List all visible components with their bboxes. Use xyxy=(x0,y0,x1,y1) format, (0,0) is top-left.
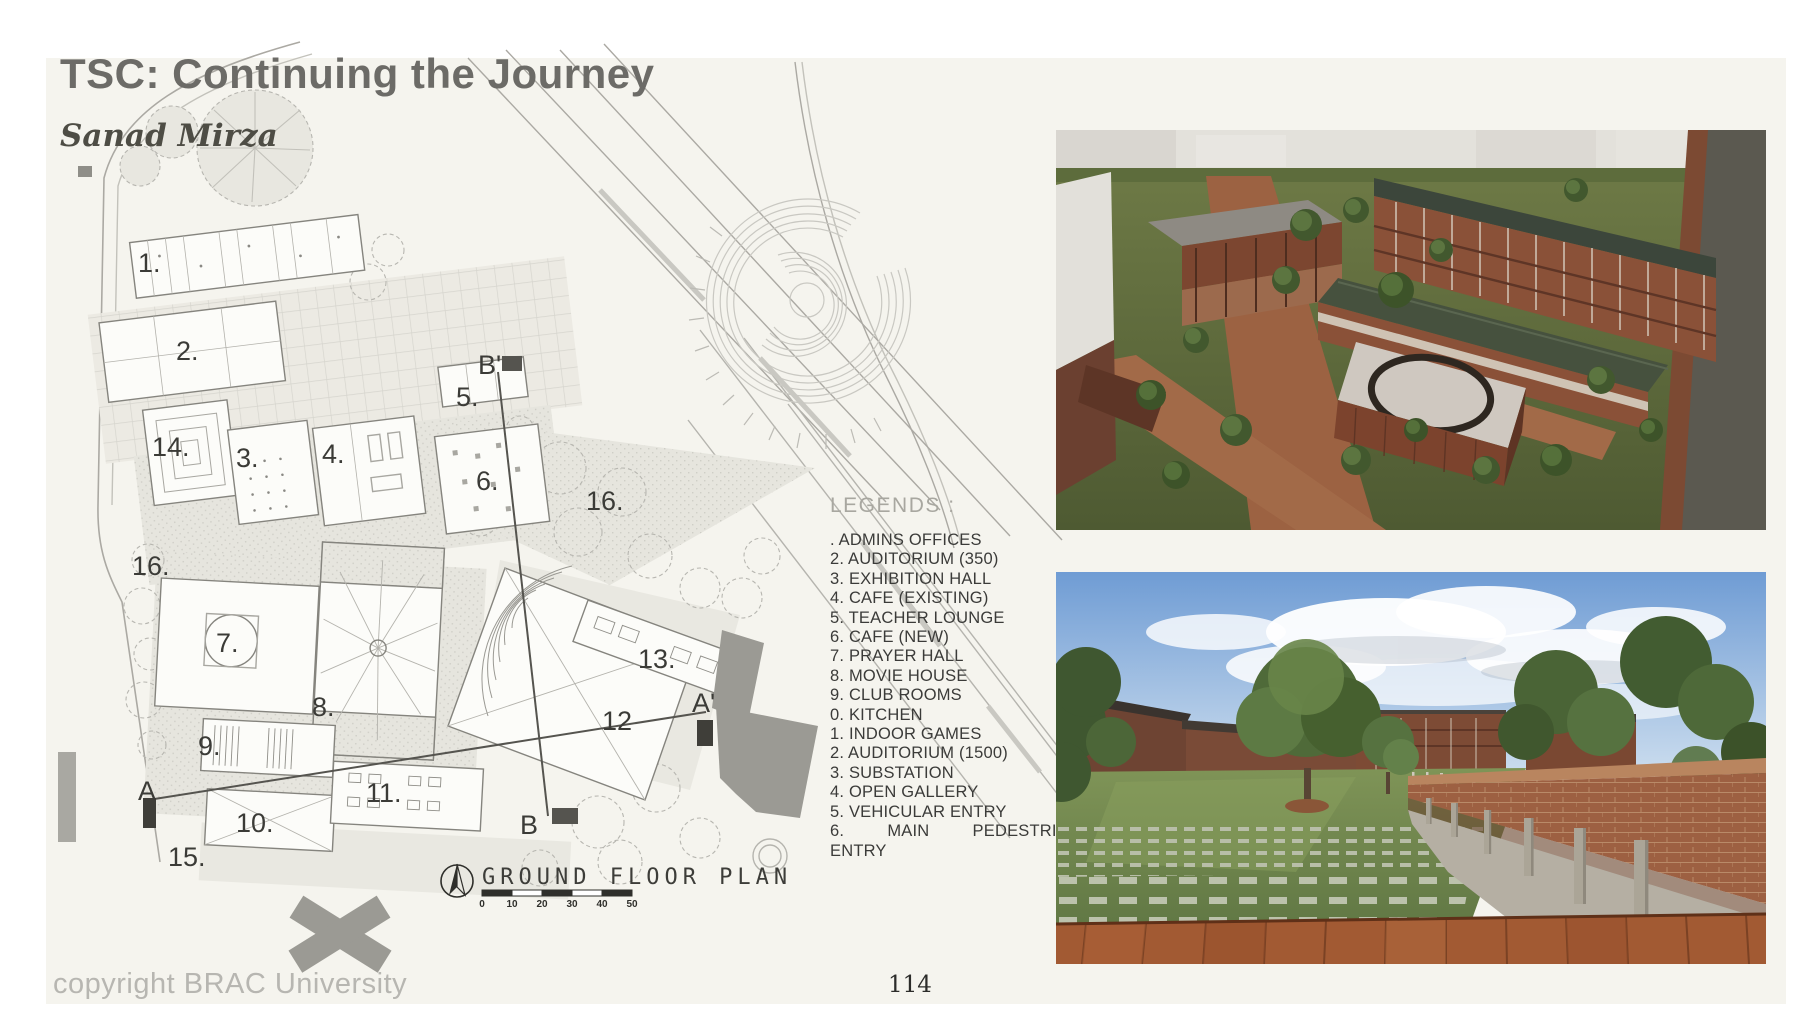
page-title: TSC: Continuing the Journey xyxy=(60,50,654,98)
plan-label-11: 11. xyxy=(366,778,402,808)
svg-text:40: 40 xyxy=(596,899,608,910)
plan-label-2: 2. xyxy=(176,336,199,366)
plan-label-9: 9. xyxy=(198,731,221,761)
plan-building-11-indoor-games xyxy=(330,761,483,831)
plan-label-12: 12 xyxy=(602,706,632,736)
svg-text:30: 30 xyxy=(566,899,578,910)
courtyard-render-image xyxy=(1056,572,1766,964)
plan-label-6: 6. xyxy=(476,466,499,496)
plan-label-14: 14. xyxy=(152,432,190,462)
plan-label-3: 3. xyxy=(236,443,259,473)
page-number: 114 xyxy=(888,972,932,998)
plan-label-10: 10. xyxy=(236,808,274,838)
svg-text:50: 50 xyxy=(626,899,638,910)
plan-label-13: 13. xyxy=(638,644,676,674)
svg-text:10: 10 xyxy=(506,899,518,910)
plan-label-4: 4. xyxy=(322,439,345,469)
legend-item: 6. MAIN PEDESTRIAN xyxy=(830,822,1080,841)
legend-item: 2. AUDITORIUM (350) xyxy=(830,550,1102,569)
plan-label-section-b-prime: B' xyxy=(478,350,501,380)
plan-label-5: 5. xyxy=(456,382,479,412)
plan-building-4 xyxy=(313,416,426,526)
plan-label-section-b: B xyxy=(520,810,538,840)
aerial-render-image xyxy=(1056,130,1766,530)
plan-building-9-club-rooms xyxy=(201,719,336,778)
scale-bar-labels: 0 10 20 30 40 50 xyxy=(479,899,638,910)
plan-label-7: 7. xyxy=(216,628,239,658)
author-name: Sanad Mirza xyxy=(60,118,278,154)
plan-label-15: 15. xyxy=(168,842,206,872)
svg-text:20: 20 xyxy=(536,899,548,910)
copyright-text: copyright BRAC University xyxy=(53,968,407,1001)
plan-label-section-a-prime: A' xyxy=(692,688,715,718)
plan-label-16-west: 16. xyxy=(132,551,170,581)
plan-label-16-east: 16. xyxy=(586,486,624,516)
legend-item: . ADMINS OFFICES xyxy=(830,531,1102,550)
scale-bar xyxy=(482,890,632,896)
plan-label-section-a: A xyxy=(138,776,156,806)
plan-caption: GROUND FLOOR PLAN xyxy=(482,865,792,890)
plan-label-1: 1. xyxy=(138,248,161,278)
svg-text:0: 0 xyxy=(479,899,485,910)
plan-label-8: 8. xyxy=(312,692,335,722)
